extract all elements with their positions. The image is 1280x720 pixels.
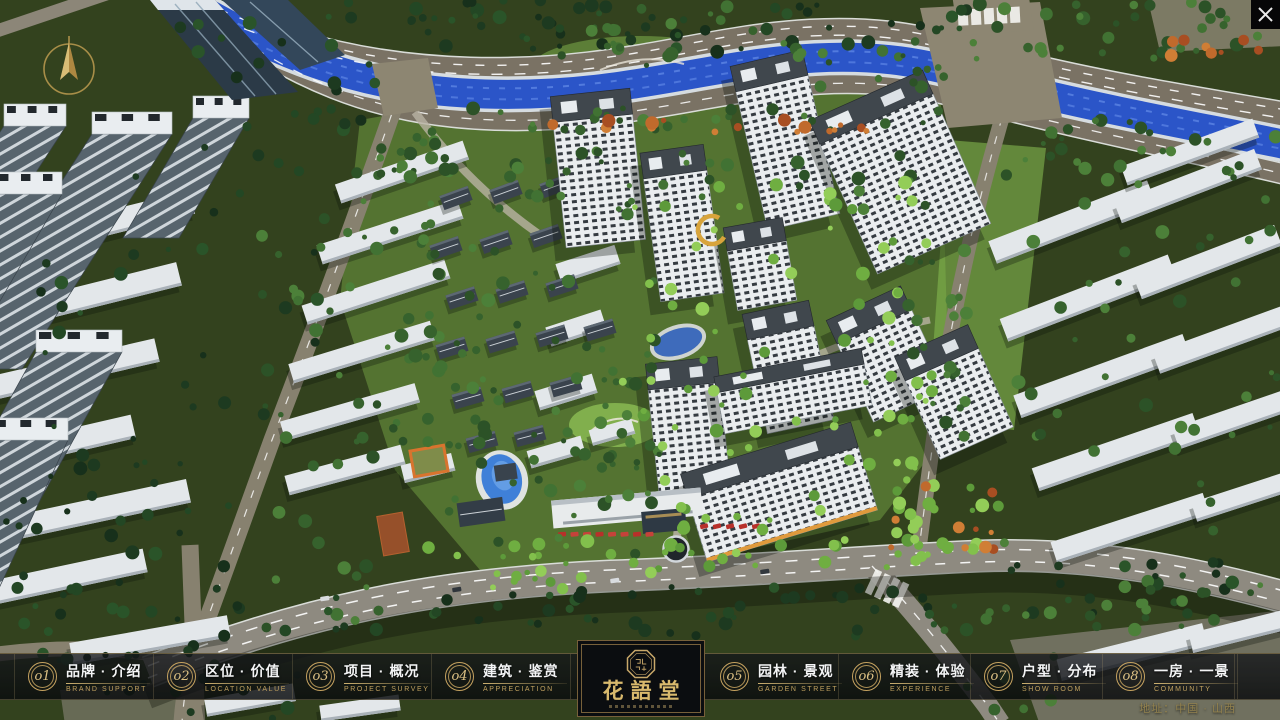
address-text: 地址：中国 · 山西 [1139, 700, 1236, 716]
number-badge: o8 [1116, 662, 1145, 691]
nav-label-en: EXPERIENCE [890, 686, 974, 693]
gold-rule [483, 683, 567, 684]
nav-label-zh: 区位 · 价值 [205, 661, 289, 681]
badge-number: o8 [1122, 670, 1138, 683]
close-icon [1258, 7, 1273, 22]
nav-item-location[interactable]: o2 区位 · 价值LOCATION VALUE [154, 654, 293, 699]
gold-rule [758, 683, 842, 684]
seal-icon [626, 649, 656, 679]
number-badge: o1 [28, 662, 57, 691]
gold-rule [66, 683, 150, 684]
nav-label-zh: 一房 · 一景 [1154, 661, 1238, 681]
badge-number: o6 [858, 670, 874, 683]
nav-label-en: BRAND SUPPORT [66, 686, 150, 693]
logo-subtext [609, 705, 673, 708]
nav-label-en: LOCATION VALUE [205, 686, 289, 693]
nav-label-zh: 项目 · 概况 [344, 661, 430, 681]
number-badge: o3 [306, 662, 335, 691]
nav-label-zh: 户型 · 分布 [1022, 661, 1106, 681]
logo-title: 花語堂 [596, 680, 687, 702]
gold-rule [344, 683, 430, 684]
nav-label-zh: 园林 · 景观 [758, 661, 842, 681]
compass-icon [38, 32, 100, 98]
nav-label-en: PROJECT SURVEY [344, 686, 430, 693]
number-badge: o6 [852, 662, 881, 691]
nav-label-zh: 建筑 · 鉴赏 [483, 661, 567, 681]
number-badge: o5 [720, 662, 749, 691]
close-button[interactable] [1251, 0, 1280, 29]
presentation-root: o1 品牌 · 介绍BRAND SUPPORT o2 区位 · 价值LOCATI… [0, 0, 1280, 720]
number-badge: o4 [445, 662, 474, 691]
nav-label-en: SHOW ROOM [1022, 686, 1106, 693]
number-badge: o2 [167, 662, 196, 691]
nav-label-zh: 品牌 · 介绍 [66, 661, 150, 681]
badge-number: o7 [990, 670, 1006, 683]
nav-label-en: COMMUNITY [1154, 686, 1238, 693]
number-badge: o7 [984, 662, 1013, 691]
nav-item-floorplan[interactable]: o7 户型 · 分布SHOW ROOM [971, 654, 1103, 699]
map-canvas[interactable] [0, 0, 1280, 720]
badge-number: o1 [34, 670, 50, 683]
gold-rule [890, 683, 974, 684]
nav-item-garden[interactable]: o5 园林 · 景观GARDEN STREET [707, 654, 839, 699]
nav-item-project[interactable]: o3 项目 · 概况PROJECT SURVEY [293, 654, 432, 699]
badge-number: o5 [726, 670, 742, 683]
nav-item-interior[interactable]: o6 精装 · 体验EXPERIENCE [839, 654, 971, 699]
badge-number: o3 [312, 670, 328, 683]
badge-number: o4 [451, 670, 467, 683]
nav-label-zh: 精装 · 体验 [890, 661, 974, 681]
nav-item-brand[interactable]: o1 品牌 · 介绍BRAND SUPPORT [15, 654, 154, 699]
gold-rule [1154, 683, 1238, 684]
nav-label-en: APPRECIATION [483, 686, 567, 693]
nav-zone-right: o5 园林 · 景观GARDEN STREET o6 精装 · 体验EXPERI… [707, 654, 1238, 699]
orange-trim-building [410, 445, 448, 477]
gold-rule [1022, 683, 1106, 684]
nav-zone-left: o1 品牌 · 介绍BRAND SUPPORT o2 区位 · 价值LOCATI… [14, 654, 571, 699]
project-logo[interactable]: 花語堂 [577, 640, 705, 717]
gold-rule [205, 683, 289, 684]
badge-number: o2 [173, 670, 189, 683]
nav-item-architecture[interactable]: o4 建筑 · 鉴赏APPRECIATION [432, 654, 571, 699]
nav-item-views[interactable]: o8 一房 · 一景COMMUNITY [1103, 654, 1235, 699]
nav-label-en: GARDEN STREET [758, 686, 842, 693]
